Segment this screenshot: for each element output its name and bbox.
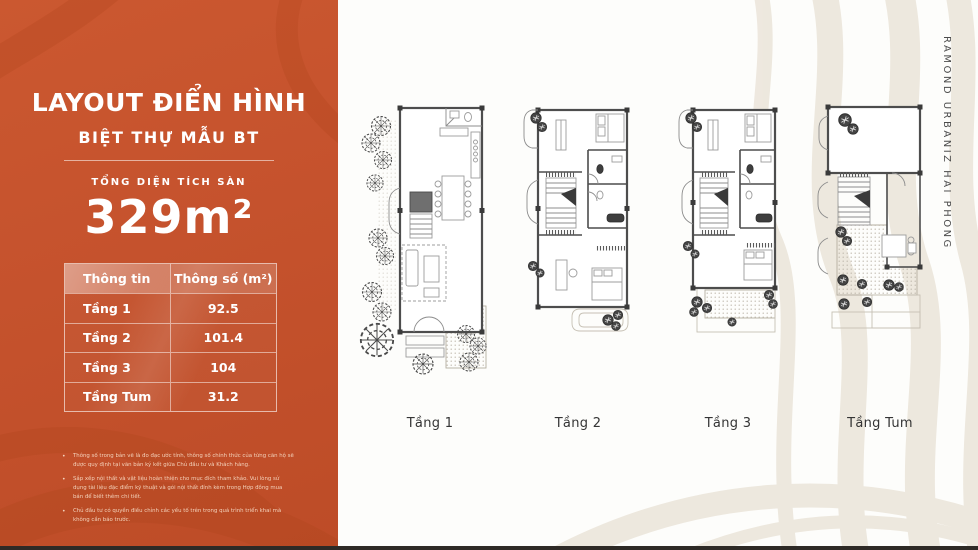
bottom-edge-bar xyxy=(0,546,978,550)
plan-label-tang-tum: Tầng Tum xyxy=(810,416,950,431)
row-label: Tầng Tum xyxy=(65,383,170,412)
table-row: Tầng Tum 31.2 xyxy=(65,382,276,412)
info-panel: LAYOUT ĐIỂN HÌNH BIỆT THỰ MẪU BT TỔNG DI… xyxy=(0,0,338,550)
note-item: •Thông số trong bản vẽ là đo đạc ước tín… xyxy=(62,452,294,469)
row-label: Tầng 1 xyxy=(65,294,170,323)
floorplan-tang-1 xyxy=(361,106,486,374)
row-value: 92.5 xyxy=(170,294,276,323)
project-watermark: RAMOND URBANIZ HAI PHONG xyxy=(941,36,952,250)
bullet-icon: • xyxy=(62,507,66,517)
page-title: LAYOUT ĐIỂN HÌNH xyxy=(0,88,338,117)
table-row: Tầng 1 92.5 xyxy=(65,293,276,323)
brochure-slide: LAYOUT ĐIỂN HÌNH BIỆT THỰ MẪU BT TỔNG DI… xyxy=(0,0,978,550)
bullet-icon: • xyxy=(62,475,66,485)
row-value: 104 xyxy=(170,353,276,382)
plan-label-tang-3: Tầng 3 xyxy=(658,416,798,431)
row-label: Tầng 3 xyxy=(65,353,170,382)
row-label: Tầng 2 xyxy=(65,324,170,353)
divider-line xyxy=(64,160,274,161)
area-table: Thông tin Thông số (m²) Tầng 1 92.5 Tầng… xyxy=(64,263,277,412)
note-text: Sắp xếp nội thất và vật liệu hoàn thiện … xyxy=(73,476,282,499)
plan-label-tang-2: Tầng 2 xyxy=(508,416,648,431)
row-value: 31.2 xyxy=(170,383,276,412)
note-text: Chủ đầu tư có quyền điều chỉnh các yếu t… xyxy=(73,508,281,523)
floorplan-tang-tum xyxy=(818,105,923,329)
disclaimer-notes: •Thông số trong bản vẽ là đo đạc ước tín… xyxy=(62,452,294,530)
floorplan-tang-2 xyxy=(524,108,630,332)
table-row: Tầng 2 101.4 xyxy=(65,323,276,353)
floorplan-tang-3 xyxy=(679,108,778,333)
page-subtitle: BIỆT THỰ MẪU BT xyxy=(0,128,338,147)
note-item: •Chủ đầu tư có quyền điều chỉnh các yếu … xyxy=(62,507,294,524)
floor-plans xyxy=(350,80,950,410)
table-row: Tầng 3 104 xyxy=(65,352,276,382)
note-text: Thông số trong bản vẽ là đo đạc ước tính… xyxy=(73,453,294,468)
total-area-value: 329m² xyxy=(0,190,338,244)
total-area-label: TỔNG DIỆN TÍCH SÀN xyxy=(0,177,338,188)
table-header-row: Thông tin Thông số (m²) xyxy=(65,264,276,293)
plan-label-tang-1: Tầng 1 xyxy=(360,416,500,431)
bullet-icon: • xyxy=(62,452,66,462)
table-header-value: Thông số (m²) xyxy=(170,264,276,293)
table-header-info: Thông tin xyxy=(65,264,170,293)
note-item: •Sắp xếp nội thất và vật liệu hoàn thiện… xyxy=(62,475,294,501)
row-value: 101.4 xyxy=(170,324,276,353)
